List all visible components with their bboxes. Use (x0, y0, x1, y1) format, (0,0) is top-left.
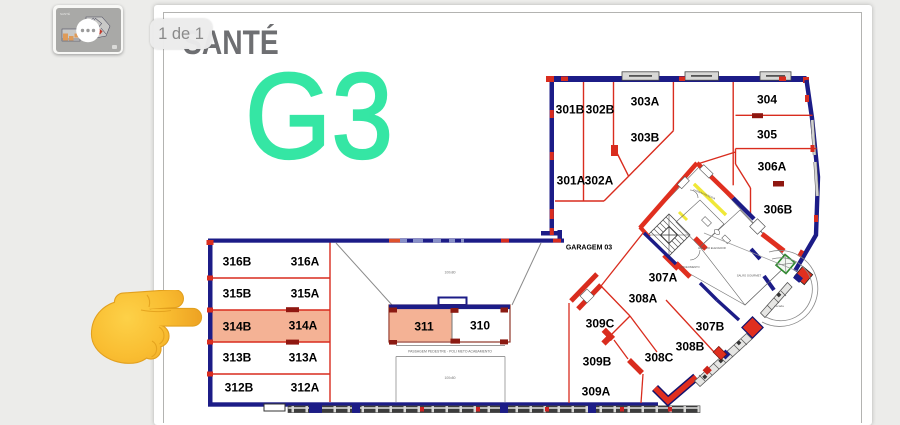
svg-text:309A: 309A (582, 385, 611, 399)
svg-text:309B: 309B (583, 355, 612, 369)
svg-text:SANTÉ: SANTÉ (60, 11, 70, 16)
svg-text:307B: 307B (696, 320, 725, 334)
svg-text:308A: 308A (629, 292, 658, 306)
svg-text:GARAGEM 03: GARAGEM 03 (566, 245, 612, 252)
svg-text:314A: 314A (289, 319, 318, 333)
svg-text:escada: escada (774, 304, 784, 308)
svg-text:301B: 301B (556, 103, 585, 117)
svg-text:316B: 316B (223, 255, 252, 269)
svg-text:315A: 315A (291, 287, 320, 301)
svg-text:302B: 302B (586, 103, 615, 117)
svg-text:100x80: 100x80 (444, 376, 455, 380)
svg-text:AQUECIMENTO: AQUECIMENTO (680, 265, 699, 269)
svg-text:313B: 313B (223, 351, 252, 365)
svg-text:306B: 306B (764, 203, 793, 217)
svg-text:303B: 303B (631, 131, 660, 145)
svg-text:309C: 309C (586, 317, 615, 331)
svg-text:312A: 312A (291, 381, 320, 395)
svg-text:313A: 313A (289, 351, 318, 365)
svg-text:303A: 303A (631, 95, 660, 109)
svg-text:305: 305 (757, 128, 777, 142)
svg-text:308B: 308B (676, 340, 705, 354)
svg-text:314B: 314B (223, 320, 252, 334)
svg-text:PASSAGEM PEDESTRE - POLI METO: PASSAGEM PEDESTRE - POLI METO ACABAMENTO (408, 350, 492, 354)
svg-text:307A: 307A (649, 271, 678, 285)
svg-text:315B: 315B (223, 287, 252, 301)
svg-text:301A: 301A (557, 174, 586, 188)
svg-text:100x80: 100x80 (444, 271, 455, 275)
svg-text:SALÃO GOURMET: SALÃO GOURMET (737, 273, 762, 278)
svg-text:310: 310 (470, 319, 490, 333)
svg-text:HALL DO ELEVADOR: HALL DO ELEVADOR (698, 246, 726, 250)
svg-text:302A: 302A (585, 174, 614, 188)
svg-text:306A: 306A (758, 160, 787, 174)
svg-text:311: 311 (414, 320, 434, 334)
svg-text:308C: 308C (645, 351, 674, 365)
svg-text:316A: 316A (291, 255, 320, 269)
svg-text:312B: 312B (225, 381, 254, 395)
svg-text:304: 304 (757, 93, 777, 107)
